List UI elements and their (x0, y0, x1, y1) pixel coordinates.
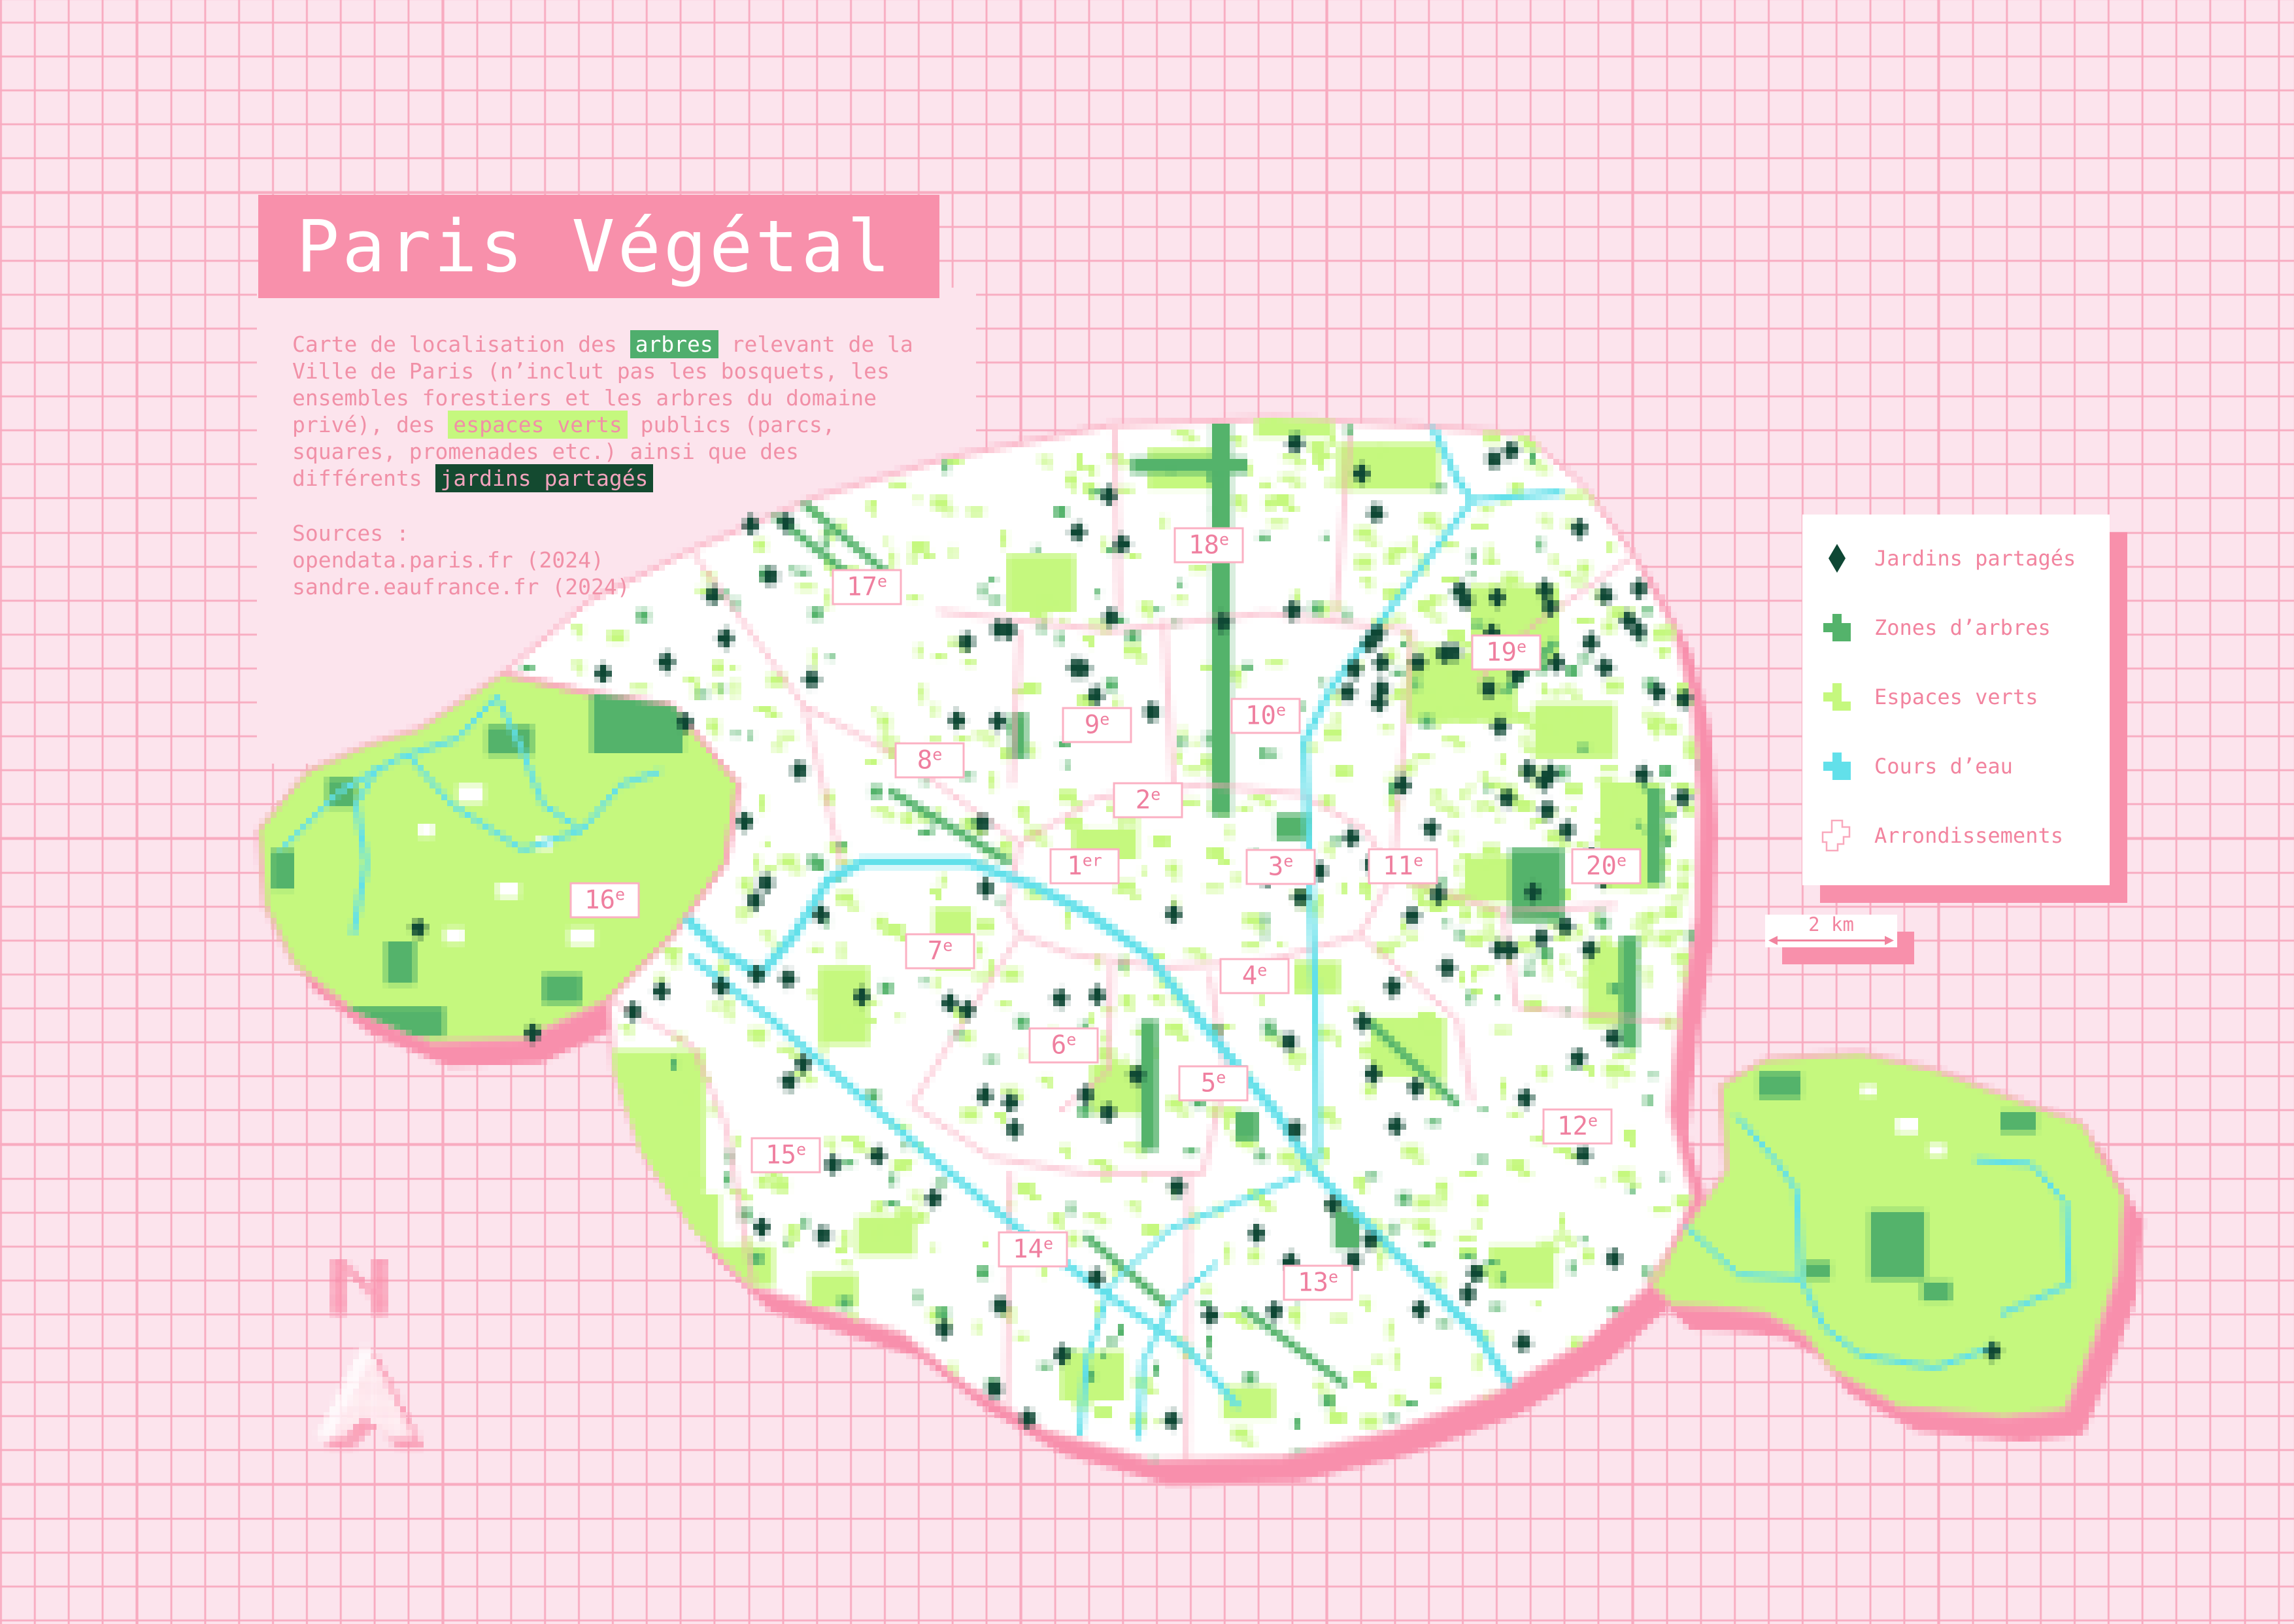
legend-row: Cours d’eau (1817, 732, 2110, 801)
source-item: sandre.eaufrance.fr (2024) (292, 573, 630, 600)
district-label-5e: 5e (1179, 1066, 1249, 1102)
poster: Paris Végétal Carte de localisation des … (0, 0, 2294, 1621)
legend-row: Zones d’arbres (1817, 593, 2110, 662)
sources-list: opendata.paris.fr (2024)sandre.eaufrance… (292, 547, 630, 600)
legend-label: Arrondissements (1874, 823, 2063, 848)
district-label-3e: 3e (1246, 849, 1316, 885)
intro-segment: jardins partagés (435, 464, 654, 492)
district-label-17e: 17e (832, 569, 902, 605)
page-title: Paris Végétal (296, 205, 893, 288)
district-label-13e: 13e (1283, 1265, 1353, 1301)
district-label-20e: 20e (1572, 849, 1642, 885)
legend-label: Zones d’arbres (1874, 615, 2051, 640)
waterway-icon (1817, 748, 1857, 785)
district-label-14e: 14e (998, 1232, 1068, 1268)
district-label-15e: 15e (751, 1138, 821, 1174)
legend-row: Espaces verts (1817, 662, 2110, 732)
title-box: Paris Végétal (258, 195, 939, 298)
legend: Jardins partagésZones d’arbresEspaces ve… (1802, 515, 2110, 885)
legend-label: Jardins partagés (1874, 546, 2076, 571)
intro-segment: arbres (630, 330, 718, 358)
district-label-10e: 10e (1231, 698, 1301, 734)
legend-row: Jardins partagés (1817, 524, 2110, 593)
district-label-9e: 9e (1062, 707, 1132, 743)
sources-heading: Sources : (292, 520, 630, 547)
district-label-8e: 8e (895, 743, 965, 779)
district-icon (1817, 817, 1857, 854)
scale-arrow-icon (1768, 936, 1894, 945)
legend-items: Jardins partagésZones d’arbresEspaces ve… (1817, 524, 2110, 870)
intro-text: Carte de localisation des arbres relevan… (292, 331, 936, 492)
district-label-7e: 7e (905, 934, 975, 970)
intro-segment: Carte de localisation des (292, 331, 630, 357)
intro-segment: espaces verts (448, 411, 627, 439)
scale-bar-label: 2 km (1808, 915, 1854, 934)
district-label-2e: 2e (1113, 783, 1183, 819)
legend-row: Arrondissements (1817, 801, 2110, 870)
source-item: opendata.paris.fr (2024) (292, 547, 630, 573)
scale-bar: 2 km (1765, 915, 1897, 947)
district-label-4e: 4e (1220, 958, 1290, 994)
sources-block: Sources : opendata.paris.fr (2024)sandre… (292, 520, 630, 600)
district-label-11e: 11e (1368, 849, 1438, 885)
legend-label: Cours d’eau (1874, 754, 2013, 779)
district-label-12e: 12e (1543, 1109, 1613, 1145)
legend-label: Espaces verts (1874, 685, 2038, 709)
tree-zone-icon (1817, 609, 1857, 646)
green-space-icon (1817, 679, 1857, 715)
district-label-16e: 16e (570, 883, 640, 919)
district-label-18e: 18e (1174, 528, 1244, 564)
diamond-icon (1817, 540, 1857, 577)
district-label-6e: 6e (1029, 1028, 1099, 1064)
district-label-19e: 19e (1472, 635, 1542, 671)
district-label-1er: 1er (1050, 849, 1120, 885)
